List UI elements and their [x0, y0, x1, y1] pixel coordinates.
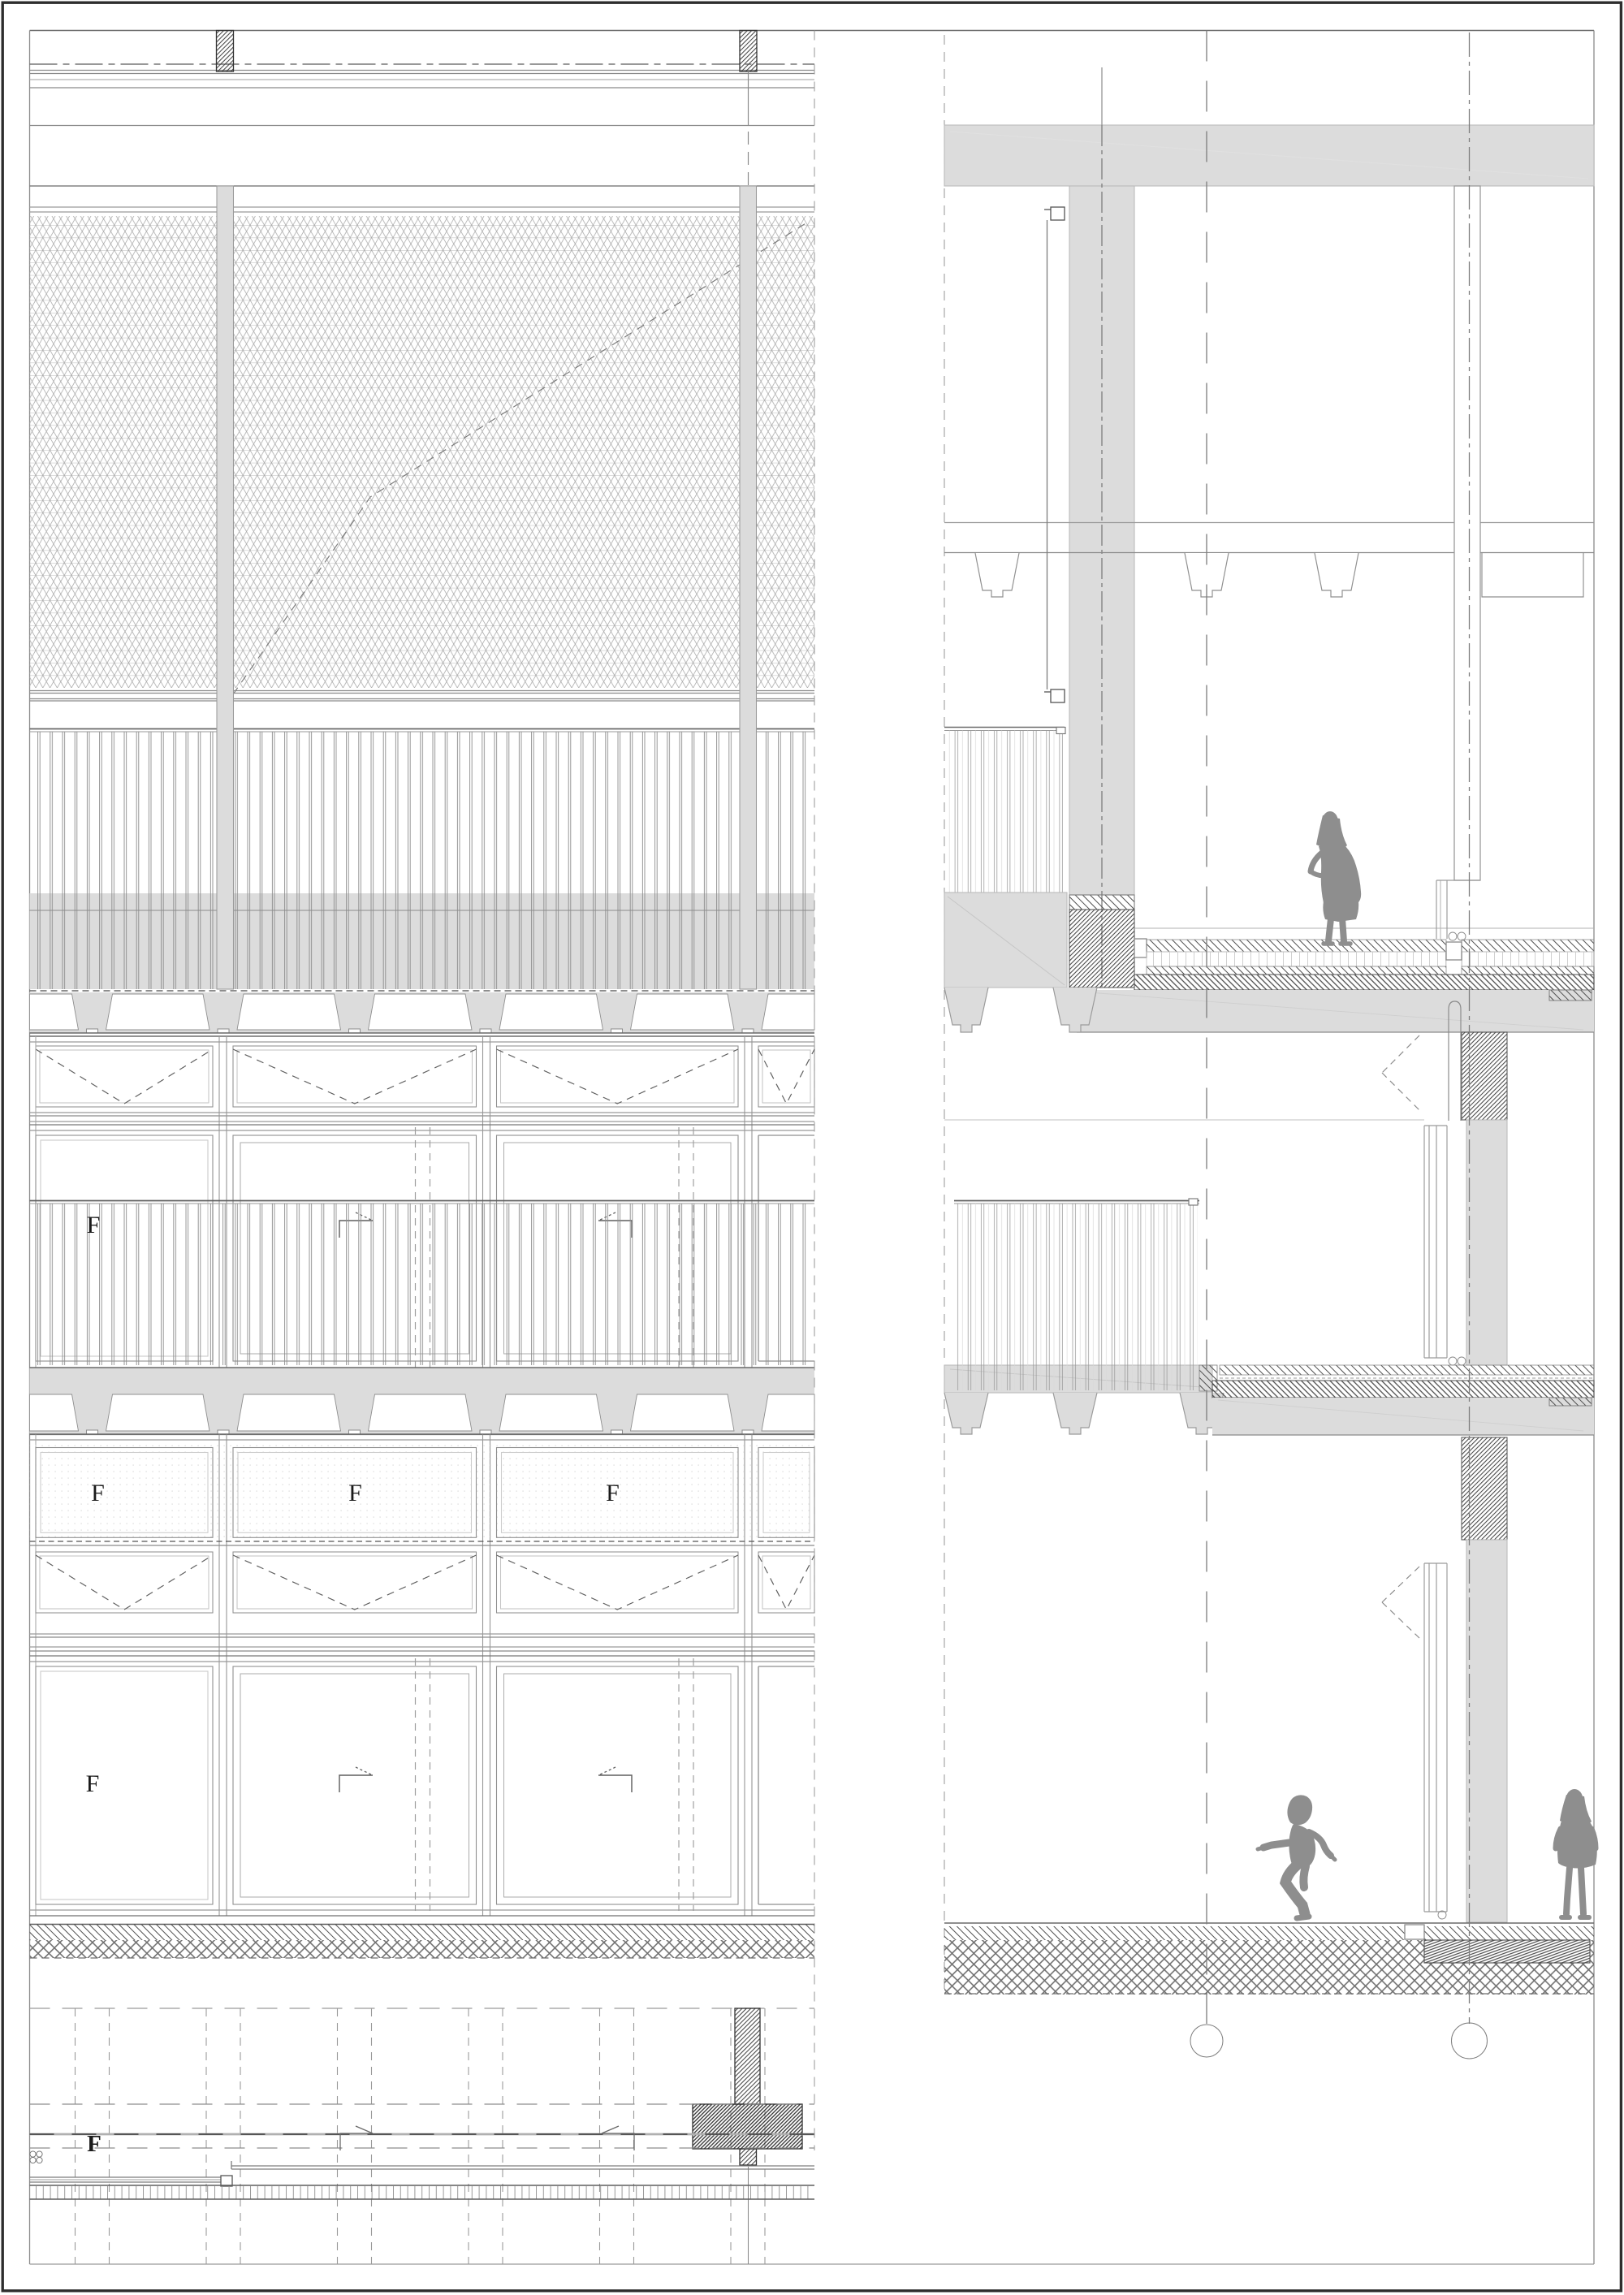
svg-text:F: F: [348, 1480, 362, 1506]
svg-text:F: F: [91, 1480, 105, 1506]
svg-text:F: F: [606, 1480, 620, 1506]
svg-text:F: F: [87, 2131, 101, 2157]
svg-text:F: F: [87, 1212, 101, 1238]
svg-text:F: F: [86, 1770, 100, 1797]
